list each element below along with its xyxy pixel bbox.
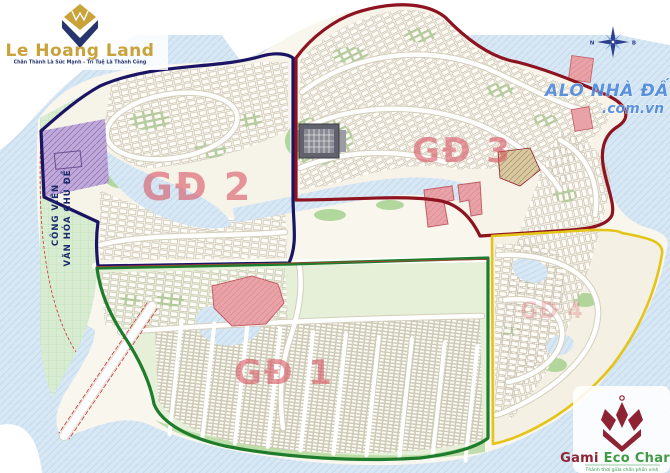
zone-label-gd2: GĐ 2	[142, 165, 253, 209]
gami-logo-name: Gami Eco Charm	[560, 451, 670, 466]
master-plan-map: GĐ 2 GĐ 3 GĐ 1 GĐ 4 CÔNG VIÊN VĂN HÓA CH…	[0, 0, 670, 473]
alo-watermark-line2: .com.vn	[602, 101, 664, 117]
le-hoang-land-logo: Le Hoang Land Chân Thành Là Sức Mạnh - T…	[0, 0, 168, 70]
compass-west-label: N	[590, 41, 595, 47]
park-label-line1: CÔNG VIÊN	[49, 184, 61, 246]
gami-name-accent: Gami	[560, 451, 599, 466]
central-building	[292, 124, 346, 158]
alo-watermark-line1: ALO NHÀ ĐẤT	[543, 77, 670, 101]
zone-label-gd3: GĐ 3	[412, 131, 512, 171]
gami-name-rest: Eco Charm	[599, 451, 670, 466]
zone-label-gd1: GĐ 1	[234, 353, 334, 393]
zone-label-gd4: GĐ 4	[520, 299, 583, 324]
compass-east-label: B	[632, 41, 636, 47]
le-hoang-land-name: Le Hoang Land	[6, 41, 155, 61]
le-hoang-land-tagline: Chân Thành Là Sức Mạnh - Trí Tuệ Là Thàn…	[14, 59, 147, 66]
master-plan-page: GĐ 2 GĐ 3 GĐ 1 GĐ 4 CÔNG VIÊN VĂN HÓA CH…	[0, 0, 670, 473]
gami-eco-charm-logo: Gami Eco Charm Thảnh thơi giữa chốn phồn…	[560, 386, 670, 473]
